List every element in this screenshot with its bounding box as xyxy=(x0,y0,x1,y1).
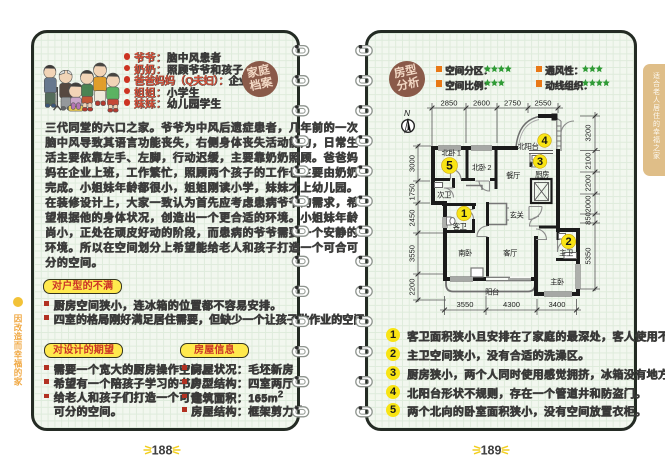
svg-text:北卧 2: 北卧 2 xyxy=(472,163,491,172)
svg-text:2850: 2850 xyxy=(441,99,458,108)
svg-text:客厅: 客厅 xyxy=(503,248,518,257)
svg-text:3200: 3200 xyxy=(584,125,593,142)
svg-text:主卫: 主卫 xyxy=(559,248,574,257)
svg-text:3550: 3550 xyxy=(408,245,417,262)
svg-text:1: 1 xyxy=(461,208,467,220)
svg-text:次卫: 次卫 xyxy=(437,190,452,199)
svg-text:5350: 5350 xyxy=(584,248,593,265)
svg-text:2550: 2550 xyxy=(535,99,552,108)
svg-text:2000: 2000 xyxy=(584,196,593,213)
svg-text:厨房: 厨房 xyxy=(535,170,549,179)
svg-text:5: 5 xyxy=(446,159,453,173)
svg-text:2: 2 xyxy=(565,236,571,248)
svg-text:1750: 1750 xyxy=(408,184,417,201)
svg-text:北卧 1: 北卧 1 xyxy=(442,148,461,157)
svg-text:3000: 3000 xyxy=(408,155,417,172)
svg-text:3400: 3400 xyxy=(549,300,566,309)
svg-text:玄关: 玄关 xyxy=(510,210,525,219)
svg-text:2600: 2600 xyxy=(473,99,490,108)
svg-text:2200: 2200 xyxy=(584,175,593,192)
svg-text:2100: 2100 xyxy=(584,153,593,170)
svg-text:850: 850 xyxy=(584,212,593,225)
svg-text:2450: 2450 xyxy=(408,210,417,227)
svg-text:客卫: 客卫 xyxy=(453,222,468,231)
svg-text:188: 188 xyxy=(152,444,173,458)
svg-text:2200: 2200 xyxy=(408,279,417,296)
svg-text:北阳台: 北阳台 xyxy=(518,142,539,151)
svg-text:4: 4 xyxy=(541,135,548,147)
svg-text:3: 3 xyxy=(537,156,543,168)
svg-text:餐厅: 餐厅 xyxy=(506,171,521,180)
svg-text:2750: 2750 xyxy=(504,99,521,108)
svg-text:阳台: 阳台 xyxy=(485,287,499,296)
svg-text:3550: 3550 xyxy=(457,300,474,309)
svg-text:主卧: 主卧 xyxy=(550,277,565,286)
svg-text:189: 189 xyxy=(481,444,502,458)
svg-text:N: N xyxy=(404,108,411,118)
svg-text:4300: 4300 xyxy=(503,300,520,309)
svg-text:南卧: 南卧 xyxy=(458,248,473,257)
